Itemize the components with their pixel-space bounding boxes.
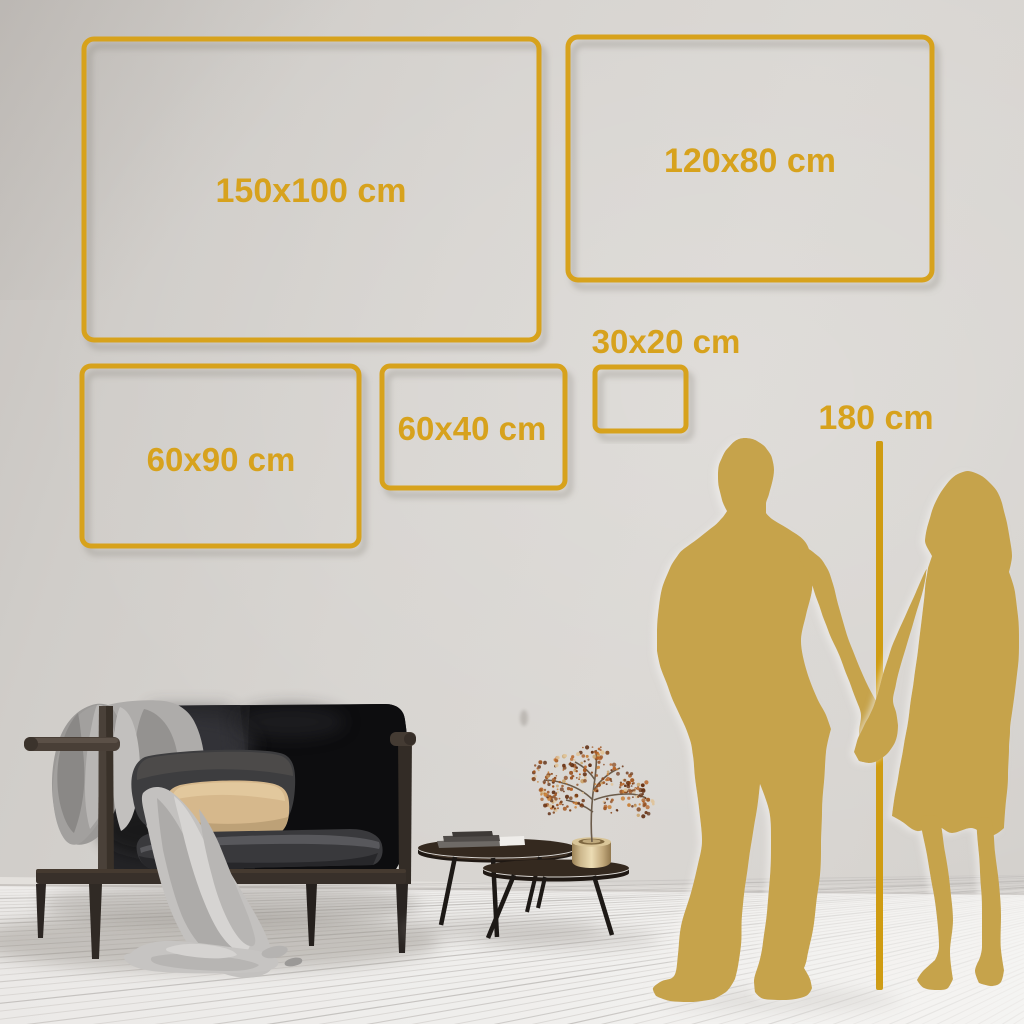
svg-text:180 cm: 180 cm <box>818 399 933 437</box>
svg-text:30x20 cm: 30x20 cm <box>592 323 741 360</box>
svg-text:60x90 cm: 60x90 cm <box>147 441 296 478</box>
svg-text:120x80 cm: 120x80 cm <box>664 142 836 180</box>
svg-text:60x40 cm: 60x40 cm <box>398 410 547 447</box>
svg-text:150x100 cm: 150x100 cm <box>216 172 407 210</box>
